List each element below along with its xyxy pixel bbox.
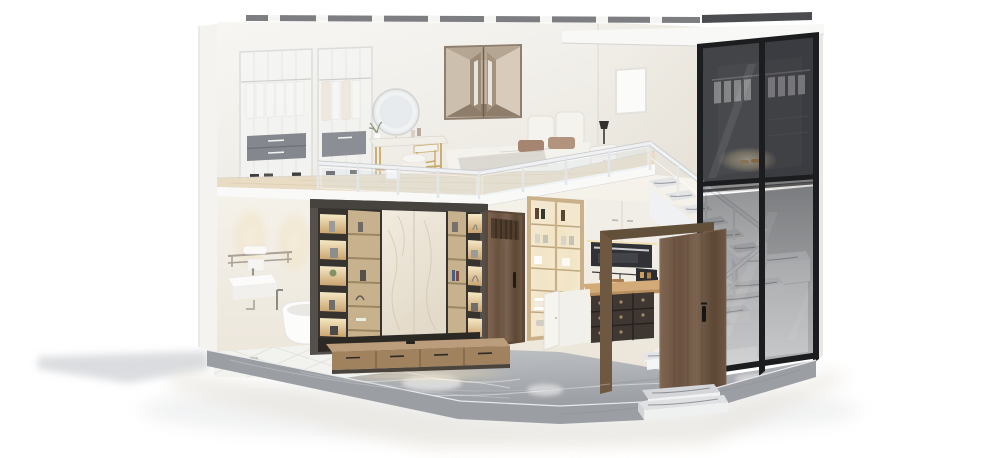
roof-cut-strip-right [702,12,812,23]
perfume-bottle [411,130,415,137]
remote [406,341,415,344]
render-canvas [0,0,1000,458]
brown-pillow-2 [548,137,575,149]
downlight-glow-2 [274,208,314,276]
left-cut-wall-edge [199,24,217,352]
right-wood-column [448,211,466,338]
left-wood-column [348,210,380,344]
open-door-handle [702,306,706,322]
open-cabinet-door [544,291,559,350]
hanging-towel [248,259,264,271]
right-edge-highlight [819,33,823,359]
bottles [535,208,539,219]
drawer-box-2 [322,131,366,157]
cutting-board [612,279,624,282]
door-handle [513,272,516,288]
marble-center-panels [382,210,446,340]
tv-feature-wall [310,199,488,355]
framed-poster [616,68,646,114]
upper-glass-pane-right [763,35,816,186]
geometric-mirror-art [444,44,522,120]
door-frame-post [600,230,612,394]
glass-wardrobe-1 [240,49,312,187]
loft-cutaway-scene [0,0,1000,458]
base-cabinet-open [544,289,590,350]
tv-console [326,338,510,374]
towel-roll [243,246,267,254]
closed-walnut-door [485,210,525,348]
brown-pillow [518,140,544,152]
roof-cut-strip [246,15,700,23]
books [452,270,455,281]
